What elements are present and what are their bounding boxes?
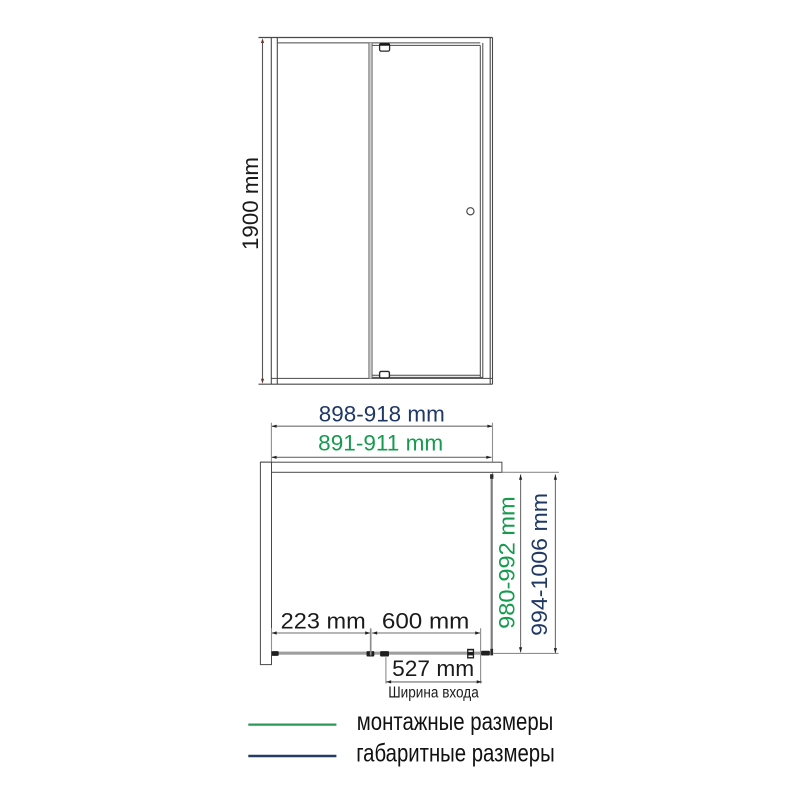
svg-text:1900 mm: 1900 mm [238,157,263,250]
svg-text:891-911 mm: 891-911 mm [318,431,443,456]
svg-text:600 mm: 600 mm [382,608,470,633]
svg-text:898-918 mm: 898-918 mm [319,402,445,427]
svg-text:монтажные размеры: монтажные размеры [357,708,554,736]
svg-text:980-992 mm: 980-992 mm [495,496,520,629]
svg-text:габаритные размеры: габаритные размеры [356,740,555,768]
svg-text:527 mm: 527 mm [392,656,474,681]
svg-text:Ширина входа: Ширина входа [388,685,479,702]
svg-text:223 mm: 223 mm [281,608,366,633]
svg-text:994-1006 mm: 994-1006 mm [527,493,552,636]
